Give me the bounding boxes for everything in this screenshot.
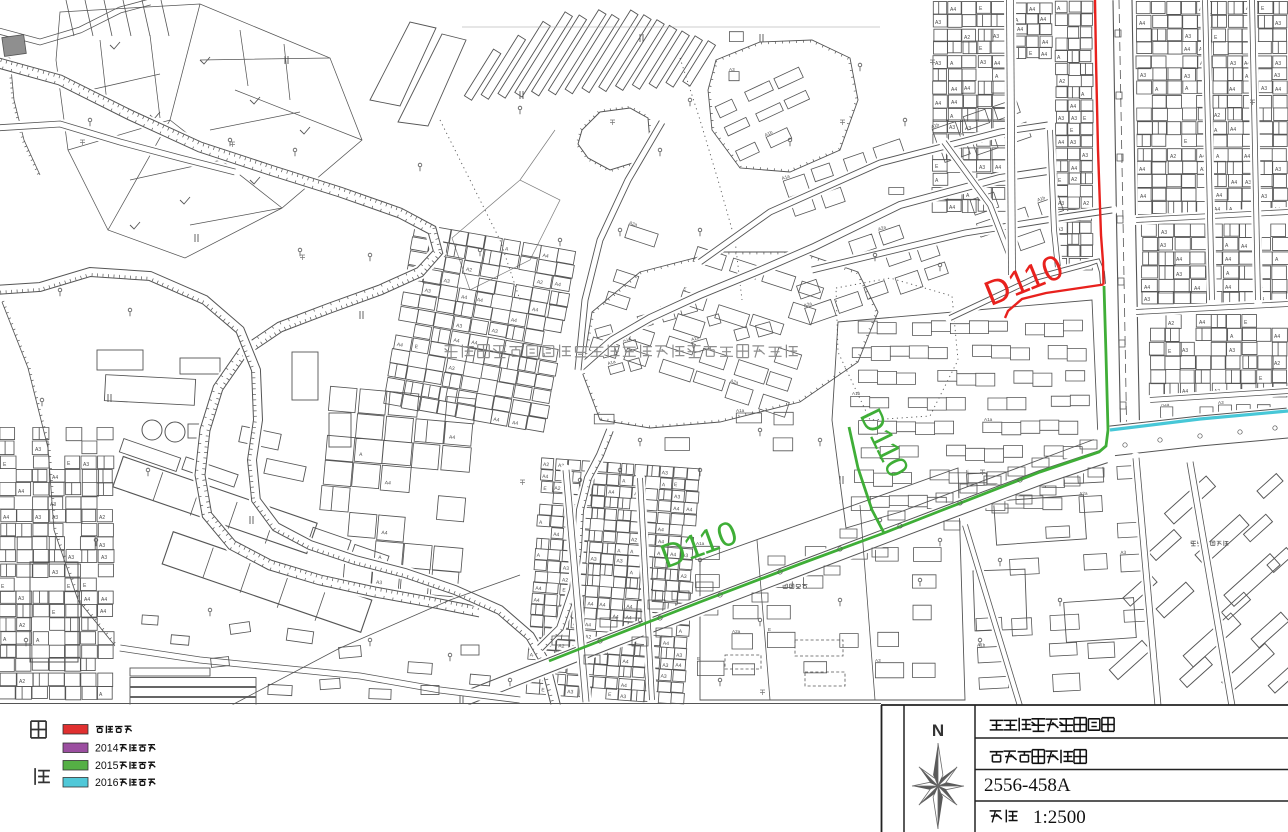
svg-text:A2: A2 [1083, 201, 1089, 207]
svg-text:A2: A2 [554, 486, 561, 492]
svg-text:A3: A3 [1261, 194, 1267, 200]
svg-text:A4: A4 [381, 530, 388, 537]
svg-text:A3: A3 [35, 515, 41, 521]
svg-text:A3: A3 [35, 447, 41, 453]
svg-text:A2: A2 [1071, 177, 1077, 183]
svg-text:A4: A4 [658, 527, 665, 533]
svg-text:A2: A2 [631, 537, 638, 543]
svg-text:A4: A4 [471, 340, 478, 347]
svg-text:A2: A2 [1274, 361, 1280, 367]
svg-text:A3: A3 [567, 689, 574, 695]
svg-text:A3: A3 [935, 20, 941, 26]
svg-text:A4: A4 [1229, 87, 1235, 93]
svg-text:A2: A2 [1059, 79, 1065, 85]
svg-text:A4: A4 [950, 7, 956, 13]
svg-text:A4: A4 [1140, 194, 1146, 200]
svg-text:A3: A3 [1160, 243, 1166, 249]
svg-text:A3: A3 [1261, 86, 1267, 92]
svg-text:A4: A4 [599, 602, 606, 608]
svg-text:2014: 2014 [95, 743, 119, 755]
svg-text:A3: A3 [935, 61, 941, 67]
svg-text:A3: A3 [590, 556, 597, 562]
svg-text:A2: A2 [1214, 113, 1220, 119]
svg-text:A4: A4 [461, 294, 468, 301]
svg-text:A3: A3 [1176, 272, 1182, 278]
svg-text:A4: A4 [951, 87, 957, 93]
svg-text:A3: A3 [676, 653, 683, 659]
svg-text:A4: A4 [935, 101, 941, 107]
svg-text:2556-458A: 2556-458A [984, 775, 1071, 796]
svg-text:A4: A4 [1225, 285, 1231, 291]
svg-text:A3: A3 [1082, 153, 1088, 159]
svg-text:A3: A3 [1245, 180, 1251, 186]
svg-text:A3: A3 [1120, 550, 1126, 555]
svg-text:A4: A4 [511, 420, 518, 427]
svg-text:A3: A3 [50, 502, 56, 508]
svg-text:A3: A3 [979, 165, 985, 171]
svg-text:A3: A3 [875, 658, 881, 663]
svg-text:A3: A3 [1184, 74, 1190, 80]
svg-text:A4: A4 [1184, 47, 1190, 53]
svg-text:A4: A4 [1194, 286, 1200, 292]
svg-text:A4: A4 [554, 281, 561, 288]
svg-text:A3: A3 [1185, 34, 1191, 40]
svg-text:A4: A4 [673, 506, 680, 512]
svg-text:A3: A3 [660, 674, 667, 680]
svg-text:A3: A3 [83, 462, 89, 468]
svg-text:A2: A2 [1168, 321, 1174, 327]
svg-text:A3: A3 [1275, 61, 1281, 67]
svg-text:A4: A4 [1070, 104, 1076, 110]
svg-text:A4: A4 [84, 597, 90, 603]
svg-text:A4: A4 [533, 598, 540, 604]
svg-text:A4: A4 [1225, 257, 1231, 263]
svg-text:A4: A4 [1040, 17, 1046, 23]
svg-text:A3: A3 [448, 365, 455, 372]
svg-text:A2: A2 [99, 515, 105, 521]
svg-text:A2: A2 [562, 577, 569, 583]
svg-text:A3: A3 [1071, 116, 1077, 122]
svg-text:A4: A4 [476, 297, 483, 304]
svg-text:A3: A3 [491, 328, 498, 335]
svg-text:A3: A3 [424, 288, 431, 295]
svg-text:N: N [932, 721, 944, 740]
svg-text:A4: A4 [1176, 257, 1182, 263]
svg-text:A3: A3 [662, 663, 669, 669]
svg-text:A4: A4 [52, 475, 58, 481]
svg-text:A4: A4 [585, 622, 592, 628]
svg-text:A4: A4 [994, 61, 1000, 67]
svg-text:A3: A3 [443, 278, 450, 285]
svg-text:A3: A3 [1229, 348, 1235, 354]
svg-text:A3: A3 [674, 494, 681, 500]
svg-text:A4: A4 [1058, 140, 1064, 146]
svg-text:A3: A3 [1275, 21, 1281, 27]
svg-text:A4: A4 [1231, 180, 1237, 186]
svg-text:A4: A4 [1017, 27, 1023, 33]
svg-text:A4: A4 [686, 507, 693, 513]
svg-text:A4: A4 [1244, 154, 1250, 160]
svg-text:A3: A3 [101, 555, 107, 561]
svg-text:A4: A4 [1144, 285, 1150, 291]
svg-text:A3: A3 [1230, 61, 1236, 67]
svg-text:A3: A3 [1140, 73, 1146, 79]
svg-text:A4: A4 [3, 515, 9, 521]
svg-text:A2: A2 [536, 279, 543, 286]
svg-text:A4: A4 [1042, 40, 1048, 46]
svg-text:E: E [768, 627, 771, 632]
svg-text:A3: A3 [1144, 297, 1150, 303]
svg-text:A3: A3 [662, 470, 669, 476]
svg-text:A4: A4 [493, 417, 500, 424]
svg-text:A4: A4 [995, 165, 1001, 171]
svg-text:2016: 2016 [95, 777, 119, 789]
svg-text:A3: A3 [980, 60, 986, 66]
svg-text:A4: A4 [1274, 334, 1280, 340]
svg-text:A3: A3 [680, 574, 687, 580]
svg-text:A2: A2 [558, 643, 565, 649]
svg-text:A2: A2 [465, 267, 472, 274]
svg-text:A4: A4 [542, 253, 549, 260]
svg-text:A3: A3 [620, 694, 627, 700]
svg-text:A3: A3 [52, 515, 58, 521]
svg-text:A4: A4 [453, 338, 460, 345]
svg-text:1:2500: 1:2500 [1033, 807, 1086, 828]
svg-text:A4: A4 [18, 489, 24, 495]
svg-text:A4: A4 [1241, 244, 1247, 250]
svg-text:A3: A3 [52, 570, 58, 576]
svg-text:A1a: A1a [736, 408, 745, 413]
svg-text:A4: A4 [1199, 320, 1205, 326]
svg-text:A4: A4 [100, 609, 106, 615]
svg-text:A2: A2 [543, 462, 550, 468]
svg-text:A2: A2 [1170, 154, 1176, 160]
svg-text:A3: A3 [993, 34, 999, 40]
svg-text:A4: A4 [542, 474, 549, 480]
svg-text:A1b: A1b [977, 642, 986, 647]
svg-text:A2: A2 [19, 623, 25, 629]
svg-text:A4: A4 [964, 86, 970, 92]
svg-text:A4: A4 [675, 663, 682, 669]
svg-text:A3: A3 [729, 67, 735, 72]
svg-text:A3: A3 [563, 565, 570, 571]
svg-text:A3: A3 [1058, 116, 1064, 122]
svg-text:A4: A4 [663, 641, 670, 647]
svg-text:A3: A3 [1161, 230, 1167, 236]
svg-text:A3: A3 [949, 125, 955, 131]
svg-text:A4: A4 [1139, 21, 1145, 27]
svg-text:A4: A4 [1216, 193, 1222, 199]
svg-text:A4: A4 [396, 342, 403, 349]
svg-text:A3: A3 [1218, 400, 1224, 405]
svg-text:A3: A3 [1070, 140, 1076, 146]
svg-text:A4: A4 [1139, 167, 1145, 173]
svg-text:A1a: A1a [984, 417, 993, 422]
svg-text:A4: A4 [621, 683, 628, 689]
svg-text:A2: A2 [964, 35, 970, 41]
svg-text:A3: A3 [18, 596, 24, 602]
svg-text:A4: A4 [1230, 127, 1236, 133]
svg-text:A4: A4 [531, 307, 538, 314]
svg-text:A4: A4 [587, 601, 594, 607]
svg-text:A4: A4 [608, 489, 615, 495]
svg-text:A3: A3 [455, 323, 462, 330]
svg-text:A4: A4 [101, 597, 107, 603]
svg-text:A4: A4 [1071, 166, 1077, 172]
svg-text:A4: A4 [1275, 87, 1281, 93]
svg-text:E: E [966, 469, 969, 474]
svg-text:A4: A4 [553, 532, 560, 538]
svg-text:A4: A4 [1041, 52, 1047, 58]
svg-text:A4: A4 [449, 435, 456, 442]
svg-text:A2: A2 [19, 679, 25, 685]
svg-text:A4: A4 [1029, 7, 1035, 13]
svg-text:A4: A4 [510, 317, 517, 324]
svg-text:A3: A3 [616, 558, 623, 564]
svg-text:A3: A3 [1274, 73, 1280, 79]
svg-text:A4: A4 [951, 100, 957, 106]
svg-text:A3: A3 [1275, 167, 1281, 173]
svg-text:A4: A4 [612, 614, 619, 620]
svg-text:2015: 2015 [95, 760, 119, 772]
svg-text:A4: A4 [535, 586, 542, 592]
svg-text:A4: A4 [626, 604, 633, 610]
svg-text:A4: A4 [949, 205, 955, 211]
svg-text:A4: A4 [384, 480, 391, 487]
svg-text:A3: A3 [99, 543, 105, 549]
svg-text:A4: A4 [622, 659, 629, 665]
svg-text:A3: A3 [1182, 348, 1188, 354]
svg-text:A3: A3 [68, 555, 74, 561]
svg-text:A1b: A1b [852, 391, 861, 396]
svg-text:A2a: A2a [732, 629, 741, 634]
